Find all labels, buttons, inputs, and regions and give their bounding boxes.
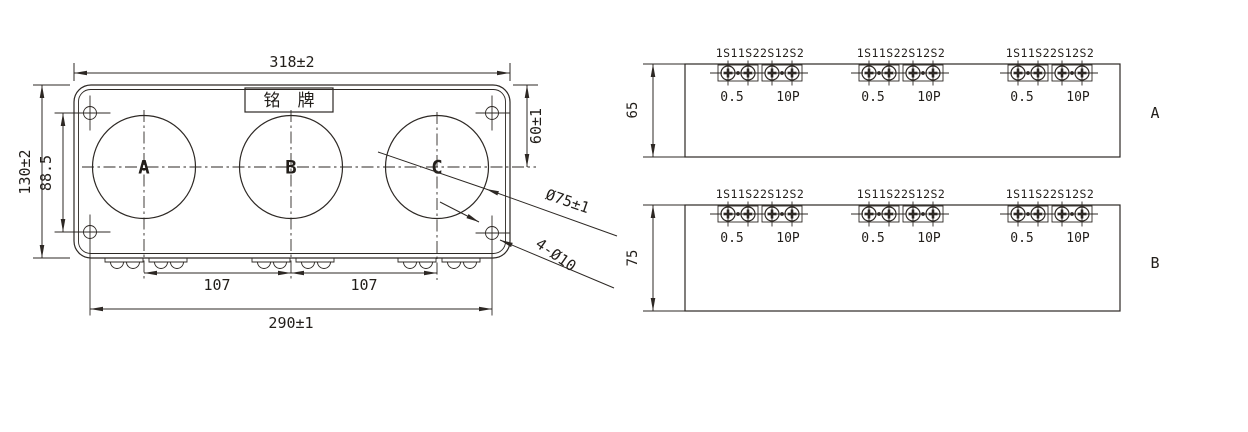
front-view-dimensions: 318±2 130±2 88.5 60±1 Ø75±1 xyxy=(16,53,617,332)
ct-outline-drawing: 1S11S22S12S2 xyxy=(0,0,1248,432)
phase-label-b: B xyxy=(285,157,296,179)
mount-hole-bottom-right xyxy=(476,216,509,315)
dim-mount-holes: 4-Ø10 xyxy=(440,202,614,288)
side-view-a-outline xyxy=(685,64,1120,157)
terminal-group xyxy=(1000,46,1100,105)
dim-overall-width: 318±2 xyxy=(74,53,510,81)
dim-aperture: Ø75±1 xyxy=(378,152,617,236)
terminal-group xyxy=(710,46,810,105)
side-view-b-label: B xyxy=(1150,254,1159,272)
side-view-b: 75 B xyxy=(625,187,1160,311)
dim-overall-width-label: 318±2 xyxy=(269,53,314,71)
phase-label-c: C xyxy=(431,157,442,179)
dim-pitch-ab-label: 107 xyxy=(203,276,230,294)
dim-terminal-span: 290±1 xyxy=(90,309,492,332)
dim-terminal-span-label: 290±1 xyxy=(268,314,313,332)
nameplate-label: 铭 牌 xyxy=(264,91,315,111)
terminal-group xyxy=(851,187,951,246)
technical-drawing-page: 1S11S22S12S2 xyxy=(0,0,1248,432)
centerlines xyxy=(82,110,536,280)
dim-mount-holes-label: 4-Ø10 xyxy=(532,235,579,276)
side-view-a: 65 A xyxy=(625,46,1160,157)
dim-hole-span: 88.5 xyxy=(37,113,63,232)
dim-top-to-center: 60±1 xyxy=(513,85,545,167)
dim-height-b-label: 75 xyxy=(625,250,641,267)
terminal-group xyxy=(710,187,810,246)
terminal-group xyxy=(851,46,951,105)
dim-pitch-bc-label: 107 xyxy=(350,276,377,294)
bottom-terminal-bumps xyxy=(105,259,480,269)
dim-height-a-label: 65 xyxy=(625,102,641,119)
dim-pitch-bc: 107 xyxy=(291,273,437,294)
dim-top-to-center-label: 60±1 xyxy=(527,108,545,144)
dim-pitch-ab: 107 xyxy=(144,273,291,294)
side-view-a-label: A xyxy=(1150,104,1159,122)
dim-overall-height-label: 130±2 xyxy=(16,149,34,194)
mount-hole-top-right xyxy=(476,96,509,130)
front-view: 铭 牌 A B C xyxy=(55,85,536,315)
dim-hole-span-label: 88.5 xyxy=(37,155,55,191)
phase-label-a: A xyxy=(138,157,150,179)
terminal-group xyxy=(1000,187,1100,246)
